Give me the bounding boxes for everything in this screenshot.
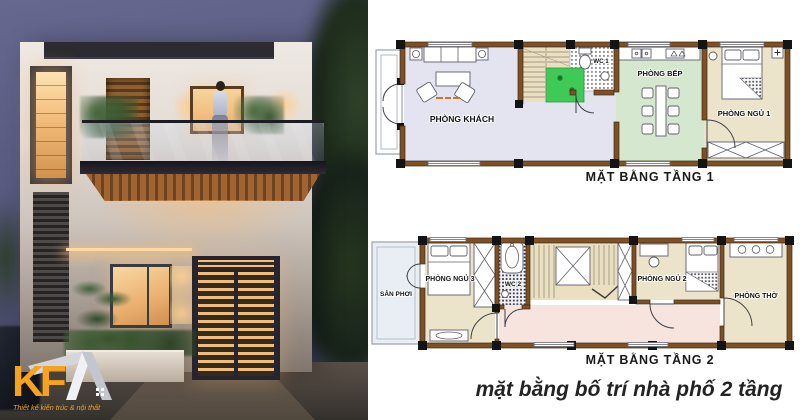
roof-parapet	[44, 42, 274, 59]
floor2-title: MẶT BẰNG TẦNG 2	[520, 353, 780, 367]
logo-tagline: Thiết kế kiến trúc & nội thất	[13, 403, 101, 412]
floor2-altar	[730, 242, 782, 257]
louvered-entry-door	[192, 256, 280, 380]
person-head	[216, 81, 225, 91]
glass-railing	[82, 120, 324, 165]
door-panel-right	[238, 272, 274, 376]
house-photo: KF Thiết kế kiến trúc & nội thất	[0, 0, 368, 420]
image-caption: mặt bằng bố trí nhà phố 2 tầng	[462, 378, 796, 402]
floor2-stair-wardrobe	[618, 243, 632, 300]
room-label-wc2: WC 2	[505, 281, 522, 288]
window-mullion	[147, 267, 149, 325]
room-label-wc1: WC 1	[593, 58, 609, 65]
floorplan-floor1: PHÒNG KHÁCH WC 1 PHÒNG BẾP PHÒNG NGỦ 1	[370, 38, 794, 170]
room-label-bedroom3: PHÒNG NGỦ 3	[425, 274, 474, 283]
kfa-logo: KF Thiết kế kiến trúc & nội thất	[10, 348, 132, 416]
door-panel-left	[198, 272, 234, 376]
room-label-bedroom2: PHÒNG NGỦ 2	[637, 274, 686, 283]
under-balcony-glow	[96, 200, 308, 254]
room-label-living: PHÒNG KHÁCH	[430, 113, 494, 124]
balcony-fascia	[80, 161, 326, 174]
room-label-bedroom1: PHÒNG NGỦ 1	[718, 109, 771, 118]
floorplan-floor2: SÂN PHƠI PHÒNG NGỦ 3 WC 2 PHÒNG NGỦ 2 PH…	[368, 234, 796, 352]
cove-light	[66, 248, 192, 251]
page: KF Thiết kế kiến trúc & nội thất	[0, 0, 800, 420]
person-torso	[213, 91, 227, 117]
floor1-title: MẶT BẰNG TẦNG 1	[520, 170, 780, 184]
wall-sconce	[170, 266, 194, 324]
tall-lit-window	[36, 72, 66, 178]
room-label-worship: PHÒNG THỜ	[735, 291, 778, 300]
house-facade	[20, 42, 312, 372]
door-transom	[198, 260, 274, 269]
room-label-kitchen: PHÒNG BẾP	[637, 68, 682, 78]
wood-soffit	[86, 174, 320, 201]
logo-kf-text: KF	[12, 357, 66, 406]
room-label-yard: SÂN PHƠI	[380, 289, 412, 298]
